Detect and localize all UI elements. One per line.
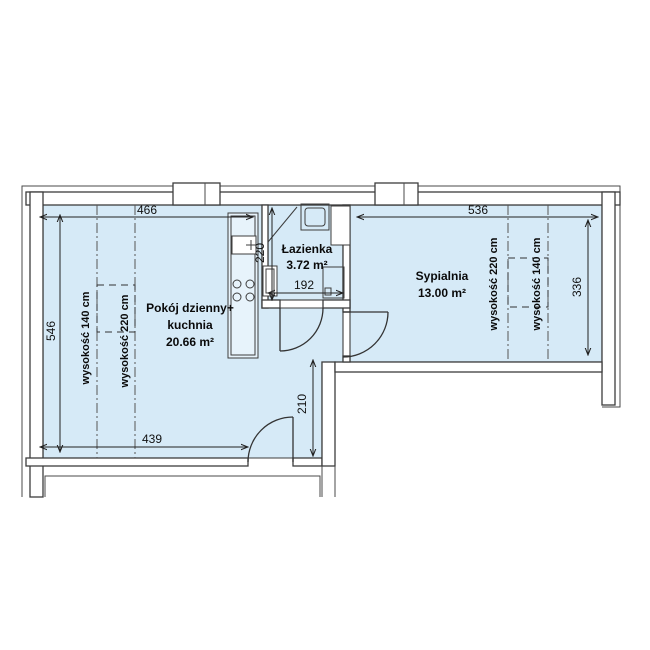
floor-plan-svg: 466 536 546 336 439 210 192 220 wysokość… [0,0,650,650]
wall-mid-vertical [322,362,335,466]
dim-living-height: 546 [44,321,58,341]
bedroom-area: 13.00 m² [418,286,466,300]
wall-left [30,192,43,497]
dim-bedroom-width: 536 [468,203,488,217]
dim-bedroom-height: 336 [570,277,584,297]
living-room-name-line1: Pokój dzienny+ [146,301,234,315]
dim-living-bottom-width: 439 [142,432,162,446]
bathroom-name: Łazienka [282,242,333,256]
living-height-140-label: wysokość 140 cm [80,291,92,385]
living-room-name-line2: kuchnia [167,318,213,332]
wall-top [26,192,620,205]
bedroom-height-140-label: wysokość 140 cm [531,237,543,331]
duct-shaft [331,206,350,245]
bedroom-height-220-label: wysokość 220 cm [488,237,500,331]
bathroom-area: 3.72 m² [286,258,327,272]
chimney-right [375,183,418,205]
wall-bathroom-bottom-left [262,300,280,308]
dim-living-width: 466 [137,203,157,217]
chimney-left [173,183,220,205]
wall-bottom-right-of-door [293,458,322,466]
floor-plan-page: 466 536 546 336 439 210 192 220 wysokość… [0,0,650,650]
dim-hall-height: 210 [295,394,309,414]
bedroom-name: Sypialnia [416,269,469,283]
wall-bathroom-bottom-right [323,300,350,308]
wall-bottom-left-of-door [26,458,248,466]
neighbor-outline-below-living [45,476,320,497]
dim-bathroom-depth: 220 [253,243,267,263]
radiator [263,266,277,296]
kitchen [228,213,258,358]
wall-bedroom-bottom [335,362,602,372]
wall-right [602,192,615,405]
living-height-220-label: wysokość 220 cm [119,294,131,388]
living-room-area: 20.66 m² [166,335,214,349]
dim-bathroom-width: 192 [294,278,314,292]
bedroom-floor [350,205,602,362]
